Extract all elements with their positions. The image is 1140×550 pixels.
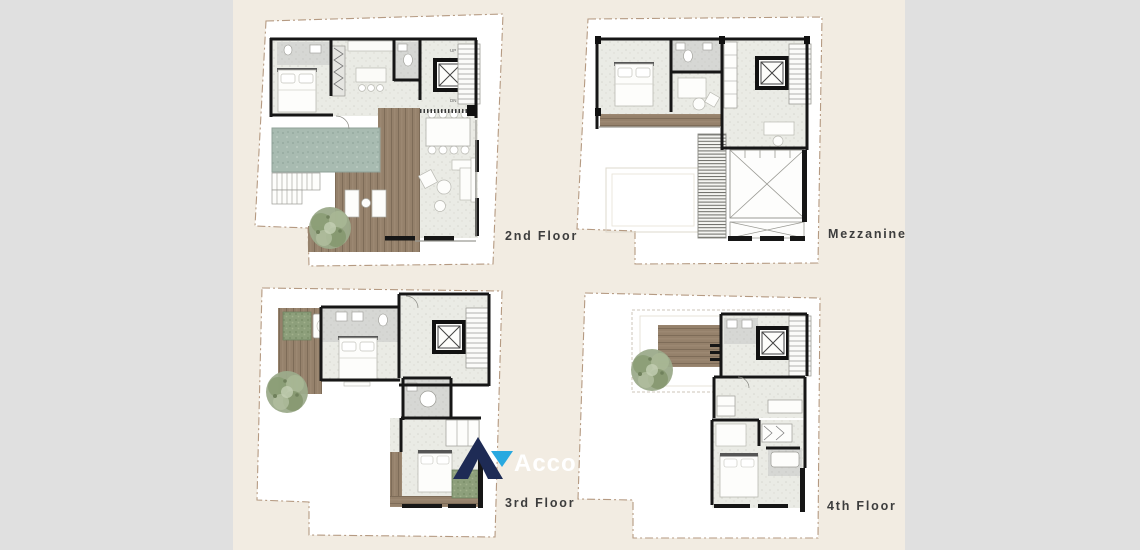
sofa bbox=[716, 424, 746, 446]
swimming-pool bbox=[272, 128, 380, 172]
bed bbox=[338, 336, 378, 380]
bed bbox=[277, 68, 317, 112]
closet bbox=[446, 420, 479, 446]
bed bbox=[720, 453, 758, 497]
bathtub bbox=[771, 452, 799, 467]
bed bbox=[614, 62, 654, 106]
planter-box bbox=[283, 312, 311, 340]
floor-plan-second-floor: UP DN bbox=[255, 14, 503, 266]
label-fourth-floor: 4th Floor bbox=[827, 499, 897, 513]
wardrobe bbox=[332, 46, 345, 96]
staircase bbox=[466, 308, 488, 368]
planter-box bbox=[452, 470, 478, 498]
label-third-floor: 3rd Floor bbox=[505, 496, 575, 510]
label-second-floor: 2nd Floor bbox=[505, 229, 578, 243]
floor-plan-sheet: UP DN bbox=[0, 0, 1140, 550]
void-double-height bbox=[730, 150, 804, 238]
floor-plan-mezzanine bbox=[577, 17, 822, 264]
tree bbox=[309, 207, 351, 249]
floor-plan-third-floor bbox=[257, 288, 502, 537]
elevator-shaft bbox=[757, 58, 787, 88]
wardrobe bbox=[762, 424, 792, 442]
floor-plans-drawing: UP DN bbox=[0, 0, 1140, 550]
label-mezzanine: Mezzanine bbox=[828, 227, 907, 241]
floor-plan-fourth-floor bbox=[578, 293, 820, 538]
balcony-deck bbox=[600, 114, 722, 127]
tree bbox=[631, 349, 673, 391]
stair-up-label: UP bbox=[450, 48, 456, 53]
bed bbox=[418, 450, 452, 492]
stair-dn-label: DN bbox=[450, 98, 457, 103]
cabinet bbox=[724, 42, 737, 108]
elevator-shaft bbox=[758, 328, 788, 358]
tree bbox=[266, 371, 308, 413]
elevator-shaft bbox=[434, 322, 464, 352]
